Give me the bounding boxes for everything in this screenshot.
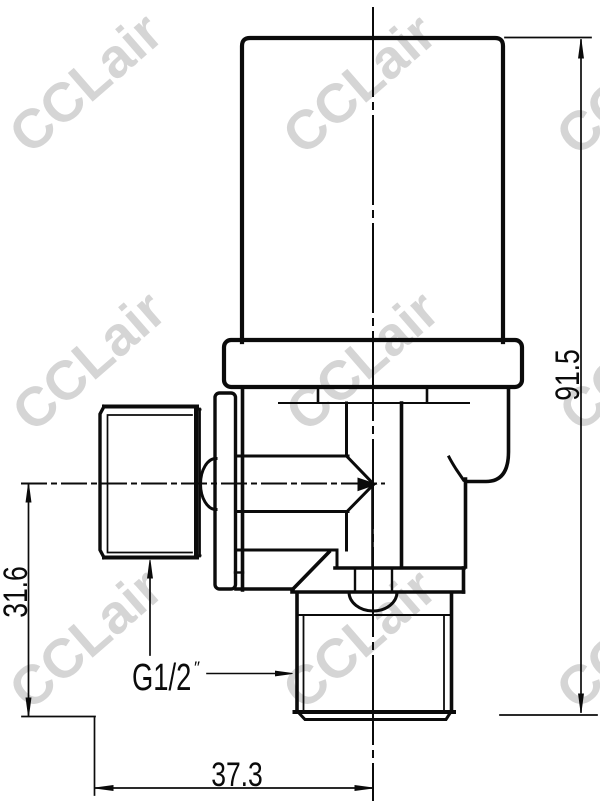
svg-text:31.6: 31.6 (0, 566, 35, 618)
svg-text:″: ″ (194, 658, 200, 677)
svg-text:91.5: 91.5 (549, 349, 587, 401)
svg-text:G1/2: G1/2 (132, 657, 191, 699)
svg-text:37.3: 37.3 (211, 756, 263, 794)
